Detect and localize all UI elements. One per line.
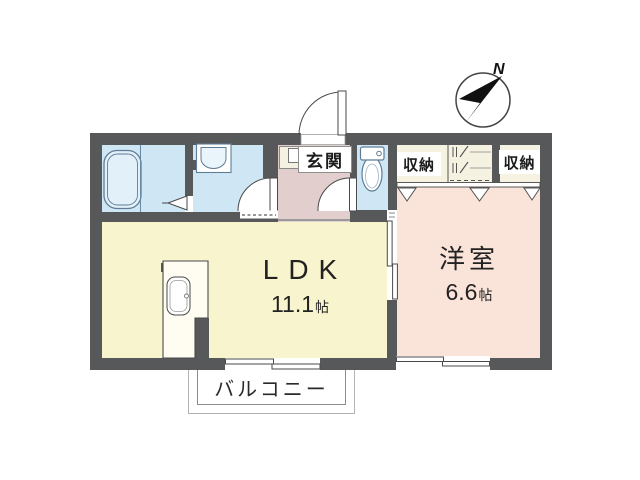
- bath-folding-door-icon: [168, 196, 187, 210]
- floor-plan: バルコニー: [0, 0, 640, 480]
- closet-door-mark-2: [470, 188, 489, 201]
- western-room-label-text: 洋室: [439, 239, 499, 276]
- bathtub: [104, 151, 141, 209]
- ldk-size-unit: 帖: [315, 297, 329, 317]
- closet-door-mark-1: [398, 188, 416, 201]
- sliding-door-panel-2: [393, 264, 398, 299]
- toilet-flush-button: [377, 151, 382, 156]
- closet-slash: [460, 146, 468, 157]
- fixtures-overlay: N: [0, 0, 640, 480]
- ldk-window-panel-left: [226, 359, 274, 364]
- ldk-label-text: LDK: [263, 254, 347, 286]
- compass-north-label: N: [493, 61, 505, 78]
- toilet-door-leaf: [350, 178, 357, 211]
- western-window-panel-right: [443, 362, 490, 367]
- ldk-size-label: 11.1帖: [230, 290, 370, 318]
- ldk-window-panel-right: [272, 364, 320, 369]
- closet-door-mark-3: [524, 188, 540, 200]
- washroom-door-swing: [238, 178, 271, 211]
- toilet-door-swing: [318, 178, 350, 211]
- entrance-door-leaf: [338, 91, 346, 135]
- storage-right-label: 収納: [503, 152, 535, 173]
- genkan-label: 玄関: [306, 147, 344, 172]
- western-room-label: 洋室: [408, 240, 530, 274]
- western-size-unit: 帖: [478, 285, 492, 305]
- washroom-door-leaf: [270, 178, 278, 211]
- ldk-size-value: 11.1: [271, 291, 314, 318]
- ldk-label: LDK: [240, 252, 370, 288]
- closet-slash: [460, 162, 468, 173]
- closet-door-rail: [397, 183, 540, 188]
- western-size-value: 6.6: [446, 279, 478, 306]
- entrance-door-opening: [301, 135, 345, 145]
- western-window-panel-left: [397, 357, 444, 362]
- entrance-door-arc: [299, 92, 342, 135]
- storage-left-label: 収納: [403, 154, 435, 175]
- genkan-label-box: 玄関: [298, 146, 352, 173]
- storage-right-label-box: 収納: [499, 150, 540, 174]
- washbasin-bowl: [201, 148, 226, 169]
- sliding-door-panel-1: [387, 221, 392, 266]
- storage-left-label-box: 収納: [397, 152, 441, 176]
- western-room-size-label: 6.6帖: [408, 278, 530, 306]
- kitchen-faucet: [185, 294, 189, 298]
- toilet-bowl: [362, 157, 382, 191]
